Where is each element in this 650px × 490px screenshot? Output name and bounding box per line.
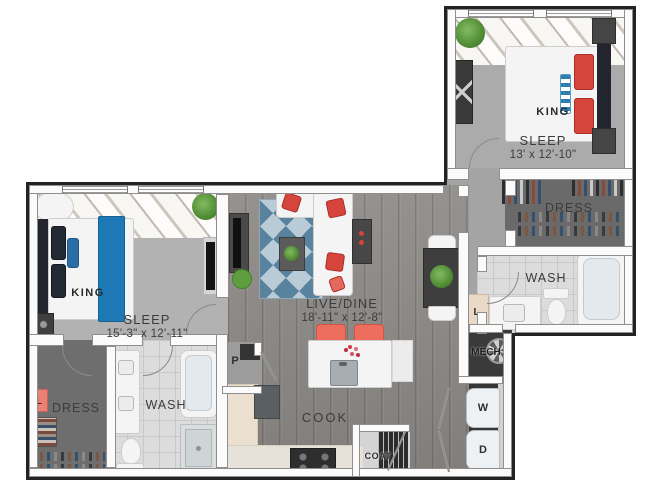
exterior-wall-edge (512, 333, 515, 480)
dryer-unit: D (466, 430, 500, 470)
wall (29, 185, 38, 468)
shower-drain (196, 446, 201, 451)
exterior-wall-edge (512, 333, 636, 336)
wall (505, 180, 516, 196)
wall (499, 168, 633, 180)
bed1-pillow (51, 226, 66, 260)
wall (469, 324, 503, 333)
living-tv (233, 218, 241, 268)
dress1-label: DRESS (40, 401, 112, 415)
bedroom1-name: SLEEP (82, 313, 212, 328)
pouf (232, 269, 252, 289)
sink (503, 304, 525, 322)
wall (216, 194, 229, 298)
window (138, 186, 204, 193)
wall (477, 256, 487, 272)
wall (515, 324, 633, 333)
toilet-tank (543, 288, 569, 299)
wash1-label: WASH (130, 398, 202, 412)
exterior-wall-edge (26, 182, 447, 185)
bedroom1-room-label: SLEEP 15'-3" x 12'-11" (82, 313, 212, 341)
wall (458, 185, 469, 197)
bedroom1-dims: 15'-3" x 12'-11" (82, 328, 212, 341)
bedroom1-tv (206, 242, 215, 290)
wall (458, 376, 503, 384)
window (468, 10, 534, 17)
dining-chair (428, 306, 456, 321)
bathtub-basin (583, 258, 620, 320)
plant-icon (430, 265, 453, 288)
wall (447, 9, 456, 177)
dryer-label: D (479, 444, 487, 456)
nightstand (592, 18, 616, 44)
bed2-pillow (574, 54, 594, 90)
shoe-row (518, 226, 622, 236)
bed1-accent-pillow (67, 238, 79, 268)
window (62, 186, 128, 193)
plant-icon (455, 18, 485, 48)
sink-faucet (339, 362, 347, 366)
exterior-wall-edge (26, 182, 29, 480)
bed1-throw-blanket (98, 216, 125, 322)
sink (118, 360, 134, 375)
shoe-row (33, 452, 105, 461)
toilet-bowl (547, 299, 566, 325)
wall (29, 334, 64, 346)
exterior-wall-edge (444, 6, 636, 9)
mech-label: MECH (461, 347, 511, 359)
living-name: LIVE/DINE (272, 297, 412, 312)
floor-plan: L (0, 0, 650, 490)
washer-label: W (478, 402, 488, 414)
bed1-king-label: KING (58, 287, 118, 300)
dress2-label: DRESS (532, 201, 606, 215)
cook-label: COOK (280, 411, 370, 426)
wall (477, 246, 633, 256)
living-room-label: LIVE/DINE 18'-11" x 12'-8" (272, 297, 412, 325)
decor-dot (359, 231, 364, 236)
exterior-wall-edge (444, 6, 447, 185)
decor-dot (359, 240, 364, 245)
toilet-bowl (121, 438, 141, 464)
wall (29, 468, 512, 477)
wall (222, 386, 262, 394)
wash2-label: WASH (510, 271, 582, 285)
wall (447, 168, 469, 180)
living-dims: 18'-11" x 12'-8" (272, 312, 412, 325)
plant-icon (192, 193, 219, 220)
bedroom2-room-label: SLEEP 13' x 12'-10" (477, 134, 609, 162)
bed2-king-label: KING (520, 106, 586, 119)
pantry-label: P (226, 355, 244, 368)
bedroom2-name: SLEEP (477, 134, 609, 149)
plant-icon (284, 246, 299, 261)
coat-label: COAT (352, 451, 404, 461)
window (546, 10, 612, 17)
exterior-wall-edge (633, 6, 636, 336)
sofa-pillow (325, 252, 345, 272)
island-side-panel (392, 340, 413, 382)
flower-decor (348, 345, 352, 349)
bedroom2-dims: 13' x 12'-10" (477, 149, 609, 162)
exterior-wall-edge (26, 477, 515, 480)
sofa-pillow (325, 197, 346, 218)
washer-unit: W (466, 388, 500, 428)
